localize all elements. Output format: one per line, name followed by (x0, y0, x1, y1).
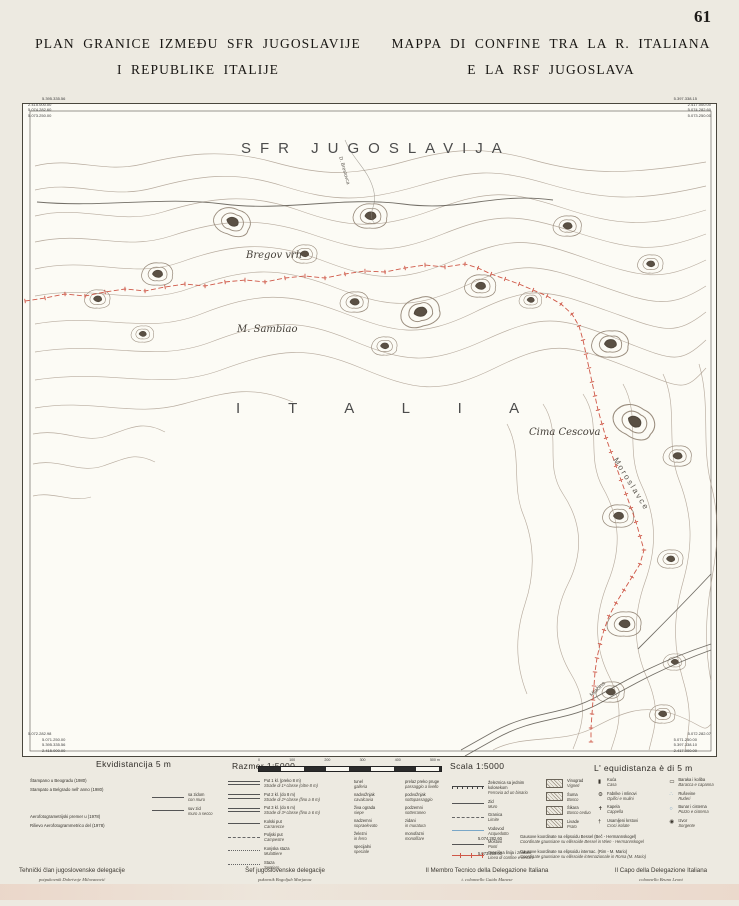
scale-tick: 200 (324, 758, 330, 762)
title-italian-line1: MAPPA DI CONFINE TRA LA R. ITALIANA (386, 31, 716, 57)
legend-crossings: tunelgalleria prelaz preko prugepassaggi… (354, 779, 450, 854)
legend-row: suv zidmuro a secco (152, 806, 222, 816)
legend-crossing-item: podvožnjaksottopassaggio (405, 792, 450, 802)
point-symbol-icon: ∴ (669, 793, 678, 798)
corner-coords-bottom-left: 5.072.282.985.071.250.005.395.335.562.41… (28, 731, 65, 753)
legend-crossing-item: podzemnisotterraneo (405, 805, 450, 815)
coordinate-note-row: 5.073.250.00 Gausove koordinate na elips… (478, 849, 736, 859)
coord-value: 2.415.000.00 (42, 748, 65, 754)
scale-bar (258, 766, 442, 772)
coord-value: 5.395.335.56 (42, 742, 65, 748)
print-notes: Štampano u Beogradu (1980)Stampato a Bel… (30, 776, 103, 794)
print-note-line: Stampato a Belgrado nell' anno (1980) (30, 785, 103, 794)
legend-crossing-item: nadzemnisopraelevato (354, 818, 399, 828)
point-symbol-icon: ▮ (598, 780, 607, 785)
legend-crossing-item: živa ogradasiepe (354, 805, 399, 815)
map-canvas: SFR JUGOSLAVIJA I T A L I A Bregov vrh M… (22, 103, 717, 757)
legend-points: ▮ KućaCasa ⚙ Fabrike i mlinoviOpifici e … (598, 777, 735, 828)
legend-road-row: Put 3 kl. (do 6 m)Strade di 3ª classe (f… (228, 805, 350, 815)
wall-samples: sa zidomcon muro suv zidmuro a secco (152, 792, 222, 819)
area-pattern-sample (546, 779, 563, 788)
sheet-number: 61 (694, 7, 711, 27)
print-note-line: Štampano u Beogradu (1980) (30, 776, 103, 785)
legend-point-row: ○ Bunar i cisternaPozzo e cisterna (669, 804, 735, 814)
legend-point-row: ▭ Baraka i kolibaBaracca e capanna (669, 777, 735, 787)
legend-point-row: ▮ KućaCasa (598, 777, 659, 787)
signature-block: Il Capo della Delegazione Italiana colon… (615, 867, 707, 882)
survey-note-line: Aerofotogrametrijski premer u (1978) (30, 812, 105, 821)
point-symbol-icon: † (598, 820, 607, 825)
place-label-m-sambiao: M. Sambiao (237, 324, 297, 335)
legend-point-row: ⚙ Fabrike i mlinoviOpifici e mulini (598, 791, 659, 801)
legend-crossing-item: tunelgalleria (354, 779, 399, 789)
coord-value: 5.073.250.00 (28, 113, 65, 119)
legend-feature-row: ZidMuro (452, 799, 544, 809)
scale-tick: 0 (258, 758, 260, 762)
map-sheet-page: 61 PLAN GRANICE IZMEĐU SFR JUGOSLAVIJE I… (0, 0, 739, 906)
corner-coords-bottom-right: 5.072.282.075.071.250.005.397.338.102.41… (674, 731, 711, 753)
feature-line-sample (452, 817, 484, 818)
scale-tick: 100 (289, 758, 295, 762)
corner-coords-top-left: 5.395.335.562.415.000.005.074.282.605.07… (28, 96, 65, 118)
title-yugoslav-line2: I REPUBLIKE ITALIJE (28, 57, 368, 83)
title-italian: MAPPA DI CONFINE TRA LA R. ITALIANA E LA… (386, 31, 716, 83)
area-pattern-sample (546, 792, 563, 801)
coordinate-notes: 5.074.282.60 Gausove koordinate na elips… (478, 834, 736, 864)
legend-row: sa zidomcon muro (152, 792, 222, 802)
legend-feature-row: Železnica sa jednim kolosekomFerrovia ad… (452, 780, 544, 795)
coord-value: 5.395.335.56 (42, 96, 65, 102)
road-line-sample (228, 808, 260, 813)
equidistance-note-sr: Ekvidistancija 5 m (96, 759, 171, 769)
scale-tick: 300 (360, 758, 366, 762)
scale-tick: 500 m (430, 758, 440, 762)
scale-label-it: Scala 1:5000 (450, 761, 504, 771)
place-label-bregov-vrh: Bregov vrh (246, 250, 302, 261)
legend-road-row: Put 1 kl. (preko 8 m)Strade di 1ª classe… (228, 778, 350, 788)
feature-line-sample (452, 786, 484, 789)
legend-roads: Put 1 kl. (preko 8 m)Strade di 1ª classe… (228, 778, 350, 873)
feature-line-sample (452, 803, 484, 804)
legend-crossing-item: nadvožnjakcavalcavia (354, 792, 399, 802)
survey-note-line: Rilievo Aerofotogrammetrico del (1978) (30, 821, 105, 830)
country-label-jugoslavija: SFR JUGOSLAVIJA (241, 140, 511, 157)
title-yugoslav: PLAN GRANICE IZMEĐU SFR JUGOSLAVIJE I RE… (28, 31, 368, 83)
legend-feature-row: GranicaLimite (452, 812, 544, 822)
point-symbol-icon: ⚙ (598, 793, 607, 798)
legend-point-row: ◉ IzvorSorgente (669, 818, 735, 828)
line-sample (152, 810, 184, 811)
point-symbol-icon: ○ (669, 807, 678, 812)
legend-crossing-item: monofaznimonofilare (405, 831, 450, 841)
road-line-sample (228, 850, 260, 851)
title-yugoslav-line1: PLAN GRANICE IZMEĐU SFR JUGOSLAVIJE (28, 31, 368, 57)
coord-value: 5.397.338.10 (674, 742, 697, 748)
signature-block: Il Membro Tecnico della Delegazione Ital… (426, 867, 549, 882)
country-label-italia: I T A L I A (236, 400, 541, 417)
title-italian-line2: E LA RSF JUGOSLAVA (386, 57, 716, 83)
scale-bar-ticks: 0100200300400500 m (258, 758, 440, 762)
road-line-sample (228, 823, 260, 824)
scan-artifact (0, 884, 739, 900)
topographic-map-graphic (23, 104, 718, 758)
line-sample (152, 797, 184, 798)
equidistance-note-it: L' equidistanza è di 5 m (594, 763, 693, 773)
corner-coords-top-right: 5.397.338.152.417.000.005.074.282.605.07… (674, 96, 711, 118)
legend-road-row: Poljski putCampestre (228, 832, 350, 842)
legend-crossing-item: specijalnispeciale (354, 844, 399, 854)
road-line-sample (228, 864, 260, 865)
point-symbol-icon: ▭ (669, 780, 678, 785)
signature-block: Šef jugoslovenske delegacije pukovnik Bo… (245, 867, 325, 882)
coordinate-note-row: 5.074.282.60 Gausove koordinate na elips… (478, 834, 736, 844)
legend-crossing-item: prelaz preko prugepassaggio a livello (405, 779, 450, 789)
feature-line-sample (452, 830, 484, 831)
legend-road-row: Konjska stazaMulattiere (228, 846, 350, 856)
legend-point-row: ✝ KapelaCappella (598, 804, 659, 814)
legend-crossing-item: zidaniin muratura (405, 818, 450, 828)
legend-point-row: † Usamljeni krstoviCroci isolate (598, 818, 659, 828)
legend-point-row: ∴ RuševineRuderi (669, 791, 735, 801)
coord-value: 2.417.000.00 (674, 748, 697, 754)
scale-tick: 400 (395, 758, 401, 762)
legend-road-row: Put 2 kl. (do 8 m)Strade di 2ª classe (f… (228, 792, 350, 802)
coord-value: 5.073.250.00 (674, 113, 711, 119)
road-line-sample (228, 794, 260, 799)
area-pattern-sample (546, 806, 563, 815)
legend-crossing-item: železniin ferro (354, 831, 399, 841)
place-label-cima-cescova: Cima Cescova (529, 427, 600, 438)
legend-road-row: Kolski putCarrarecce (228, 819, 350, 829)
road-line-sample (228, 781, 260, 786)
survey-notes: Aerofotogrametrijski premer u (1978)Rili… (30, 812, 105, 830)
area-pattern-sample (546, 819, 563, 828)
signature-block: Tehnički član jugoslovenske delegacije p… (19, 867, 125, 882)
coord-value: 5.397.338.15 (674, 96, 697, 102)
point-symbol-icon: ◉ (669, 820, 678, 825)
road-line-sample (228, 837, 260, 838)
point-symbol-icon: ✝ (598, 807, 607, 812)
